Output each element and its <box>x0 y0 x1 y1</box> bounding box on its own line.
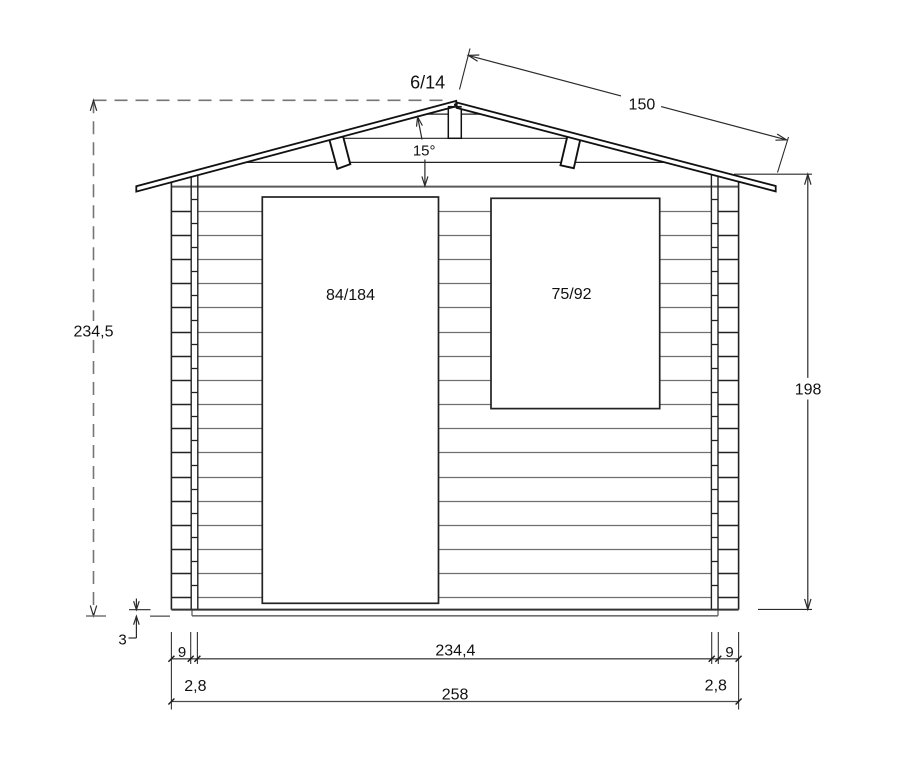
svg-text:198: 198 <box>795 381 822 398</box>
svg-text:6/14: 6/14 <box>410 73 445 93</box>
svg-text:75/92: 75/92 <box>551 286 591 303</box>
svg-text:9: 9 <box>725 644 733 661</box>
svg-text:84/184: 84/184 <box>326 287 375 304</box>
svg-text:150: 150 <box>629 97 656 114</box>
svg-text:15°: 15° <box>413 142 436 159</box>
svg-text:3: 3 <box>118 632 126 649</box>
svg-text:234,4: 234,4 <box>435 642 475 659</box>
svg-text:234,5: 234,5 <box>73 324 113 341</box>
svg-text:258: 258 <box>442 686 469 703</box>
svg-text:2,8: 2,8 <box>705 678 727 695</box>
svg-text:2,8: 2,8 <box>184 678 206 695</box>
svg-text:9: 9 <box>178 644 186 661</box>
